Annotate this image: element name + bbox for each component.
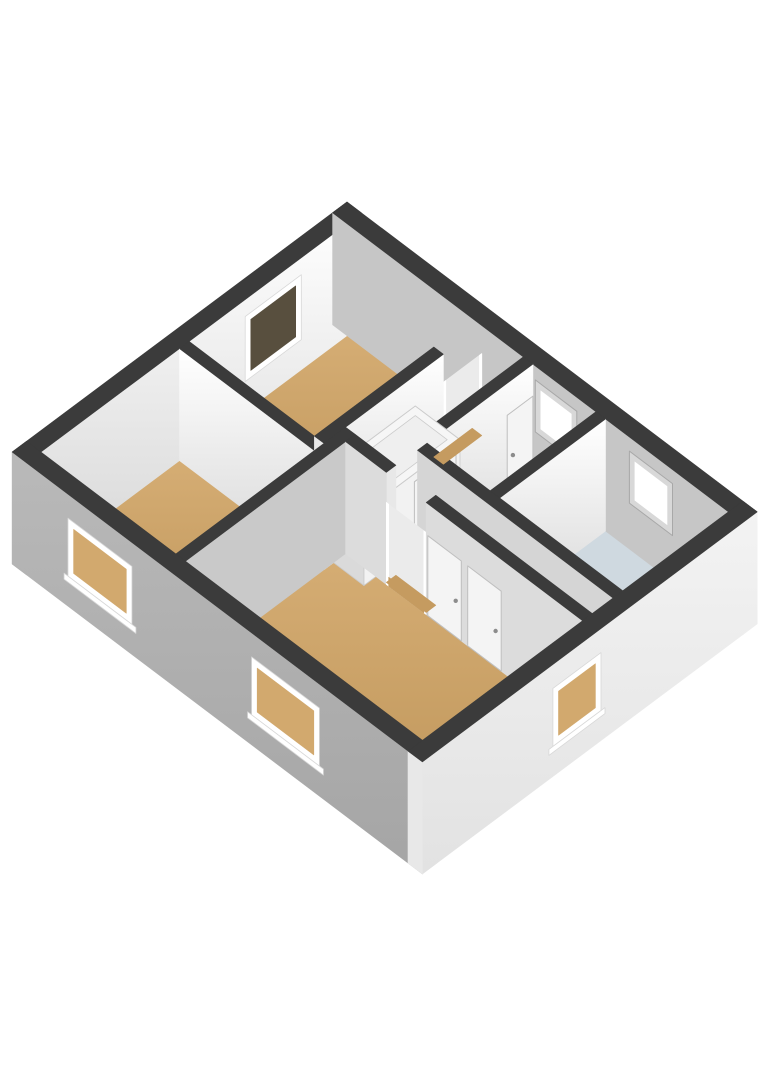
floorplan-3d-view xyxy=(0,0,768,1086)
bedroom3-closet-leaf-handle xyxy=(493,629,497,633)
bedroom3-door-leaf-handle xyxy=(454,599,458,603)
bedroom3-doorway-jamb-a xyxy=(386,502,388,586)
storage-door-leaf-handle xyxy=(511,453,515,457)
se-exterior-wall-face-s xyxy=(408,751,422,874)
floorplan-canvas xyxy=(0,0,768,1086)
